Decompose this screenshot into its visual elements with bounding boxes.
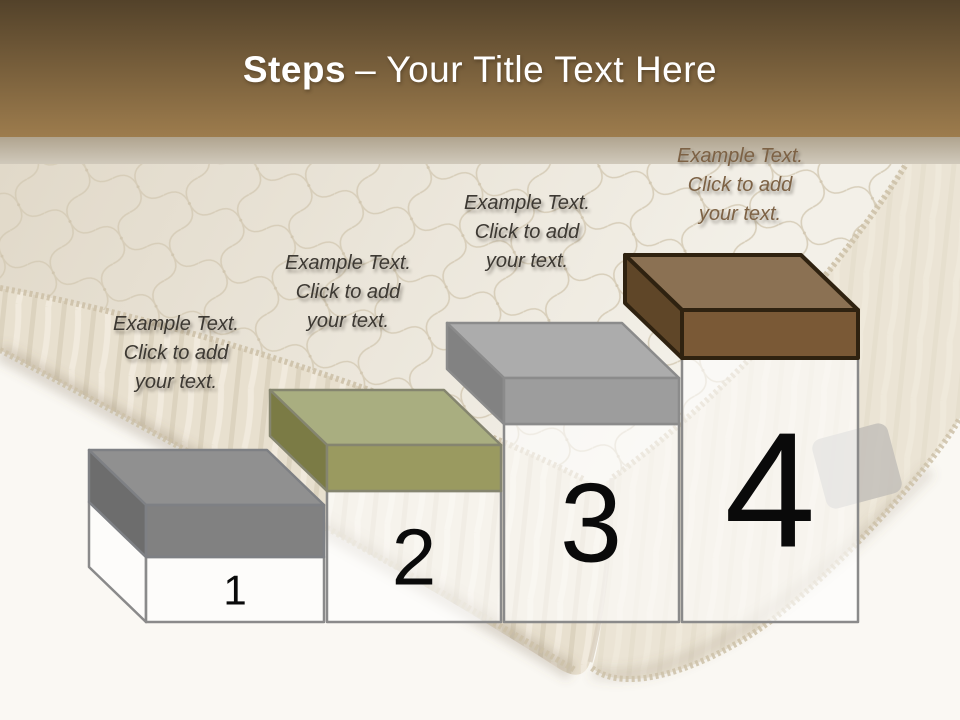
- step-2-slab-front-face: [327, 445, 501, 491]
- callout-line: Example Text.: [81, 310, 271, 339]
- step-1-text-placeholder[interactable]: Example Text. Click to add your text.: [81, 310, 271, 397]
- callout-line: Click to add: [645, 171, 835, 200]
- step-3-slab[interactable]: [447, 323, 679, 424]
- slide: Steps– Your Title Text Here: [0, 0, 960, 720]
- step-3-text-placeholder[interactable]: Example Text. Click to add your text.: [432, 189, 622, 276]
- step-4-text-placeholder[interactable]: Example Text. Click to add your text.: [645, 142, 835, 229]
- callout-line: your text.: [432, 247, 622, 276]
- callout-line: your text.: [253, 307, 443, 336]
- step-2-number: 2: [392, 513, 437, 602]
- callout-line: Example Text.: [432, 189, 622, 218]
- step-4-slab-front-face: [682, 310, 858, 358]
- callout-line: Click to add: [81, 339, 271, 368]
- callout-line: your text.: [81, 368, 271, 397]
- step-2-slab[interactable]: [270, 390, 501, 491]
- step-2-text-placeholder[interactable]: Example Text. Click to add your text.: [253, 249, 443, 336]
- step-1-slab-front-face: [146, 505, 324, 557]
- step-4-number: 4: [724, 399, 815, 582]
- callout-line: Example Text.: [645, 142, 835, 171]
- callout-line: Click to add: [432, 218, 622, 247]
- callout-line: Example Text.: [253, 249, 443, 278]
- callout-line: Click to add: [253, 278, 443, 307]
- step-3-number: 3: [560, 461, 622, 586]
- step-4-slab[interactable]: [625, 255, 858, 358]
- callout-line: your text.: [645, 200, 835, 229]
- step-3-slab-front-face: [504, 378, 679, 424]
- step-1-number: 1: [223, 567, 246, 614]
